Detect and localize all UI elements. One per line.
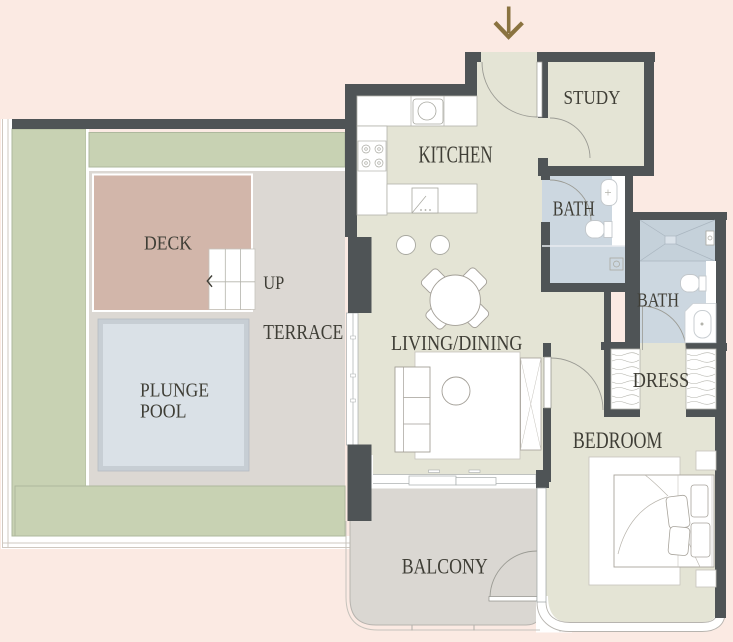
svg-text:BEDROOM: BEDROOM: [573, 428, 663, 453]
svg-text:PLUNGE: PLUNGE: [140, 380, 209, 402]
svg-text:DRESS: DRESS: [633, 368, 690, 392]
svg-text:BALCONY: BALCONY: [402, 554, 488, 579]
svg-text:TERRACE: TERRACE: [263, 320, 343, 344]
svg-text:BATH: BATH: [553, 197, 595, 221]
svg-text:DECK: DECK: [144, 232, 192, 254]
svg-text:BATH: BATH: [637, 289, 679, 311]
svg-text:POOL: POOL: [140, 401, 187, 423]
svg-text:KITCHEN: KITCHEN: [419, 143, 493, 169]
svg-text:LIVING/DINING: LIVING/DINING: [391, 331, 523, 355]
svg-text:UP: UP: [263, 274, 284, 294]
svg-text:STUDY: STUDY: [564, 87, 621, 109]
